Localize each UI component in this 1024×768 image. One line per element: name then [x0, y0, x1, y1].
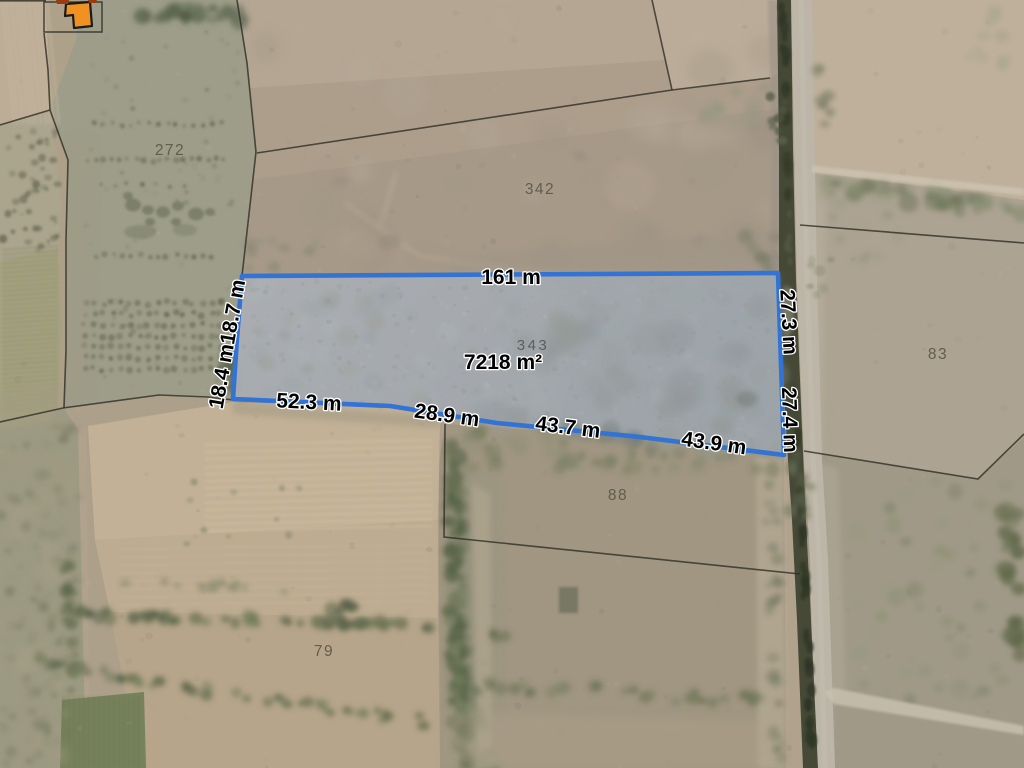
svg-text:52.3 m: 52.3 m: [276, 389, 343, 415]
svg-text:83: 83: [928, 346, 948, 363]
svg-text:161 m: 161 m: [481, 266, 541, 289]
svg-text:88: 88: [608, 487, 628, 504]
svg-text:79: 79: [314, 643, 334, 660]
svg-text:272: 272: [155, 142, 185, 159]
svg-text:342: 342: [525, 181, 555, 198]
svg-text:27.4 m: 27.4 m: [777, 387, 802, 453]
svg-text:27.3 m: 27.3 m: [775, 289, 801, 356]
svg-text:7218 m²: 7218 m²: [464, 351, 542, 374]
